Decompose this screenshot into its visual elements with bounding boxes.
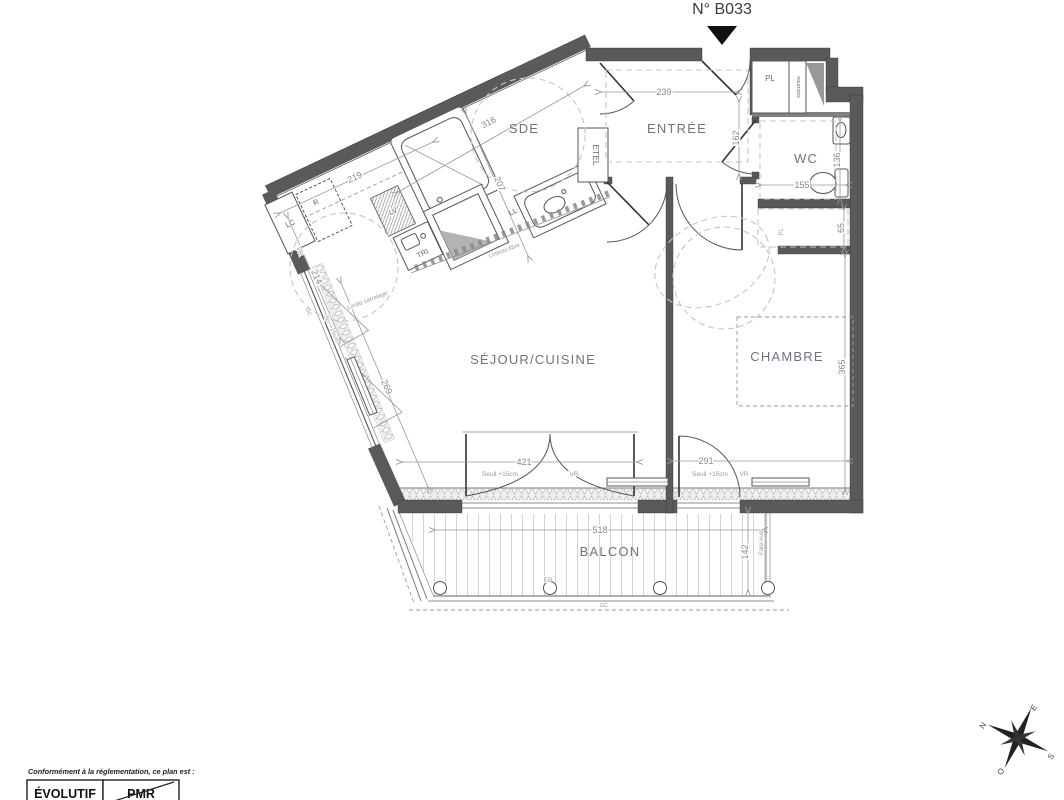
dim-365: 365 [837, 359, 847, 374]
french-door-swing-left [466, 434, 550, 496]
sejour-window: GC [290, 257, 410, 453]
vr-chambre: VR [739, 471, 748, 478]
dim-316: 316 [480, 114, 498, 130]
gc-balcon-label: GC [600, 603, 608, 609]
sde-door-swing [600, 101, 634, 114]
limite-carrelage: Limite carrelage [347, 290, 390, 311]
entree-clearance-rect [606, 70, 748, 162]
window-glazing [304, 271, 376, 447]
legend-intro: Conformément à la réglementation, ce pla… [28, 767, 195, 776]
legend-evolutif: ÉVOLUTIF [34, 786, 96, 800]
dishwasher: LV [370, 186, 415, 237]
wall-wc-south [758, 199, 850, 208]
french-door-swing-right [550, 434, 634, 496]
chambre-turning-circle [673, 227, 775, 329]
wall-east [850, 95, 863, 513]
wall-ne-step [826, 58, 838, 90]
wall-west-lower [374, 446, 400, 504]
ep-label: EP [544, 577, 553, 584]
wall-north-entree [586, 48, 702, 61]
dim-291: 291 [698, 456, 713, 466]
compass-west: O [995, 766, 1006, 776]
room-label-sejour: SÉJOUR/CUISINE [470, 352, 596, 367]
entrance-door-leaf [702, 61, 736, 95]
insulation-band-south [398, 489, 863, 500]
wall-south-3 [740, 500, 863, 513]
insulation-band-west [312, 263, 394, 443]
dim-136: 136 [832, 152, 842, 167]
room-label-sde: SDE [509, 121, 539, 136]
pare-vue-label: Pare-vue [759, 530, 765, 555]
room-label-chambre: CHAMBRE [750, 349, 823, 364]
pl2-label: PL [779, 228, 785, 236]
fridge-label: R [312, 197, 321, 208]
compass-north: N [978, 720, 989, 730]
wall-corridor-chambre [740, 177, 756, 184]
toilet-tank [835, 169, 848, 197]
pl-label: PL [765, 74, 775, 83]
dim-162: 162 [731, 130, 741, 145]
sejour-door-leaf [607, 182, 649, 225]
balcony-post [434, 582, 447, 595]
pl-closet [752, 61, 789, 113]
sde-door-leaf [600, 63, 634, 101]
dim-518: 518 [592, 525, 607, 535]
dim-239: 239 [656, 87, 671, 97]
dim-219: 219 [346, 170, 364, 185]
entree-closet: PL nourrices [752, 61, 824, 113]
window-frame-line [308, 269, 380, 445]
dim-155: 155 [794, 180, 809, 190]
chambre-clearance-ellipse [640, 199, 784, 326]
duct-wedge [806, 63, 824, 106]
dim-269: 269 [379, 378, 394, 396]
doors [462, 61, 756, 508]
etel-label: ETEL [591, 144, 601, 166]
room-label-balcon: BALCON [580, 544, 641, 559]
toilet-bowl [810, 173, 836, 194]
dim-65: 65 [836, 223, 846, 233]
seuil-chambre: Seuil +15cm [692, 471, 728, 478]
chambre-door-swing [676, 184, 742, 250]
nourrices-label: nourrices [795, 76, 801, 98]
wall-sejour-chambre [666, 177, 673, 513]
floor-plan-b033: GC LC R LV TRI [0, 0, 1064, 800]
gc-label: GC [304, 307, 313, 317]
vr-sejour: VR [569, 471, 578, 478]
dim-421: 421 [516, 457, 531, 467]
balcony-post [654, 582, 667, 595]
legend: Conformément à la réglementation, ce pla… [27, 767, 195, 800]
wall-north-pl [750, 48, 830, 61]
room-label-wc: WC [794, 151, 818, 166]
compass-rose-icon: N E S O [978, 703, 1057, 777]
page-title: N° B033 [692, 1, 752, 18]
radiators [347, 357, 809, 486]
seuil-sejour: Seuil +15cm [482, 471, 518, 478]
wall-south-1 [398, 500, 462, 513]
chambre-pl-nook [758, 209, 848, 247]
entrance-arrow-icon [707, 26, 737, 45]
dim-142: 142 [740, 544, 750, 559]
balcony-post [762, 582, 775, 595]
compass-south: S [1046, 752, 1056, 762]
room-label-entree: ENTRÉE [647, 121, 707, 136]
interior-walls [604, 61, 850, 513]
